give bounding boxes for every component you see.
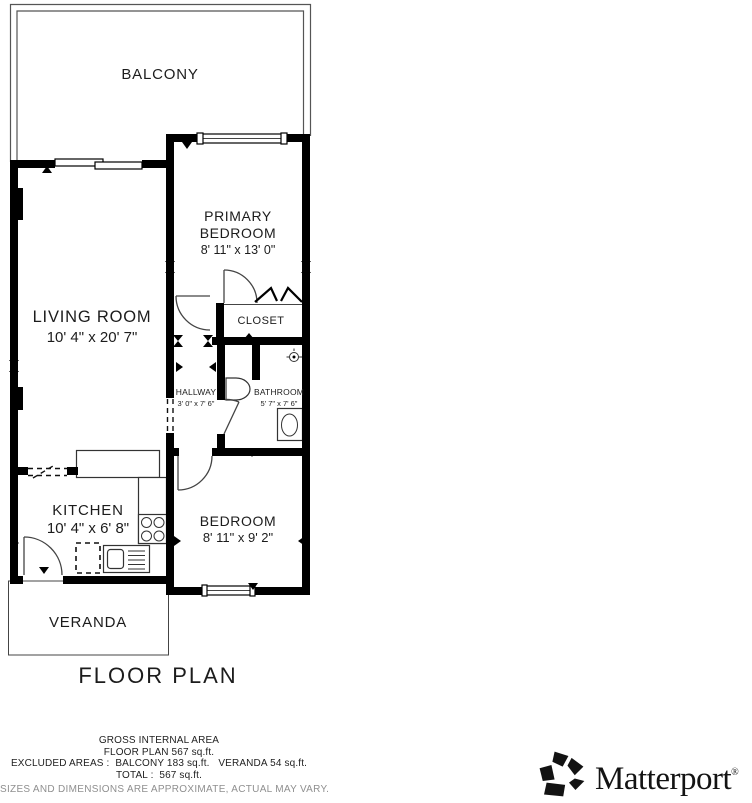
kitchen-label: KITCHEN bbox=[52, 502, 123, 519]
bedroom-window bbox=[202, 585, 255, 596]
hallway-opening-dashed bbox=[168, 399, 174, 433]
kitchen-opening-dashed bbox=[28, 466, 67, 478]
matterport-pinwheel-icon bbox=[537, 749, 586, 798]
primary-bedroom-label-line1: PRIMARY bbox=[204, 208, 272, 224]
dishwasher-icon bbox=[76, 543, 100, 573]
primary-bedroom-label-line2: BEDROOM bbox=[200, 225, 277, 241]
disclaimer-text: SIZES AND DIMENSIONS ARE APPROXIMATE, AC… bbox=[0, 784, 318, 796]
plan-title: FLOOR PLAN bbox=[78, 663, 237, 688]
total-area-value: TOTAL : 567 sq.ft. bbox=[0, 770, 318, 782]
primary-bedroom-window bbox=[197, 133, 287, 144]
bathroom-sink-icon bbox=[226, 378, 250, 400]
bedroom-door bbox=[178, 456, 212, 490]
hallway-dims: 3' 0" x 7' 6" bbox=[178, 399, 215, 408]
bathroom-door bbox=[224, 399, 239, 434]
living-room-dims: 10' 4" x 20' 7" bbox=[47, 329, 138, 346]
bathroom-dims: 5' 7" x 7' 6" bbox=[261, 399, 298, 408]
primary-bedroom-dims: 8' 11" x 13' 0" bbox=[201, 243, 276, 257]
toilet-icon bbox=[278, 409, 303, 441]
floor-plan-drawing: BALCONY PRIMARY BEDROOM 8' 11" x 13' 0" … bbox=[0, 0, 380, 710]
bedroom-label: BEDROOM bbox=[200, 513, 277, 529]
area-summary: GROSS INTERNAL AREA FLOOR PLAN 567 sq.ft… bbox=[0, 735, 318, 796]
stove-icon bbox=[139, 515, 167, 544]
floor-plan-page: { "plan": { "title": "FLOOR PLAN", "room… bbox=[0, 0, 752, 800]
closet-label: CLOSET bbox=[237, 315, 284, 327]
matterport-logo: Matterport® bbox=[537, 749, 739, 803]
kitchen-sink-icon bbox=[104, 546, 150, 573]
floor-plan-area-value: FLOOR PLAN 567 sq.ft. bbox=[0, 747, 318, 759]
living-room-label: LIVING ROOM bbox=[33, 308, 152, 326]
living-room-window bbox=[55, 159, 142, 169]
kitchen-dims: 10' 4" x 6' 8" bbox=[47, 520, 129, 537]
balcony-label: BALCONY bbox=[121, 66, 198, 83]
excluded-areas-value: EXCLUDED AREAS : BALCONY 183 sq.ft. VERA… bbox=[0, 758, 318, 770]
primary-bedroom-door bbox=[176, 296, 210, 330]
shower-valve-icon bbox=[287, 349, 303, 362]
registered-trademark-symbol: ® bbox=[731, 767, 739, 778]
gross-internal-area-label: GROSS INTERNAL AREA bbox=[0, 735, 318, 747]
matterport-wordmark: Matterport® bbox=[595, 749, 739, 803]
closet-door bbox=[224, 270, 257, 303]
matterport-wordmark-text: Matterport bbox=[595, 761, 731, 797]
closet-bifold-doors bbox=[255, 288, 302, 302]
bathroom-label: BATHROOM bbox=[254, 387, 304, 397]
veranda-label: VERANDA bbox=[49, 614, 127, 631]
bedroom-dims: 8' 11" x 9' 2" bbox=[203, 530, 274, 545]
hallway-label: HALLWAY bbox=[176, 387, 217, 397]
